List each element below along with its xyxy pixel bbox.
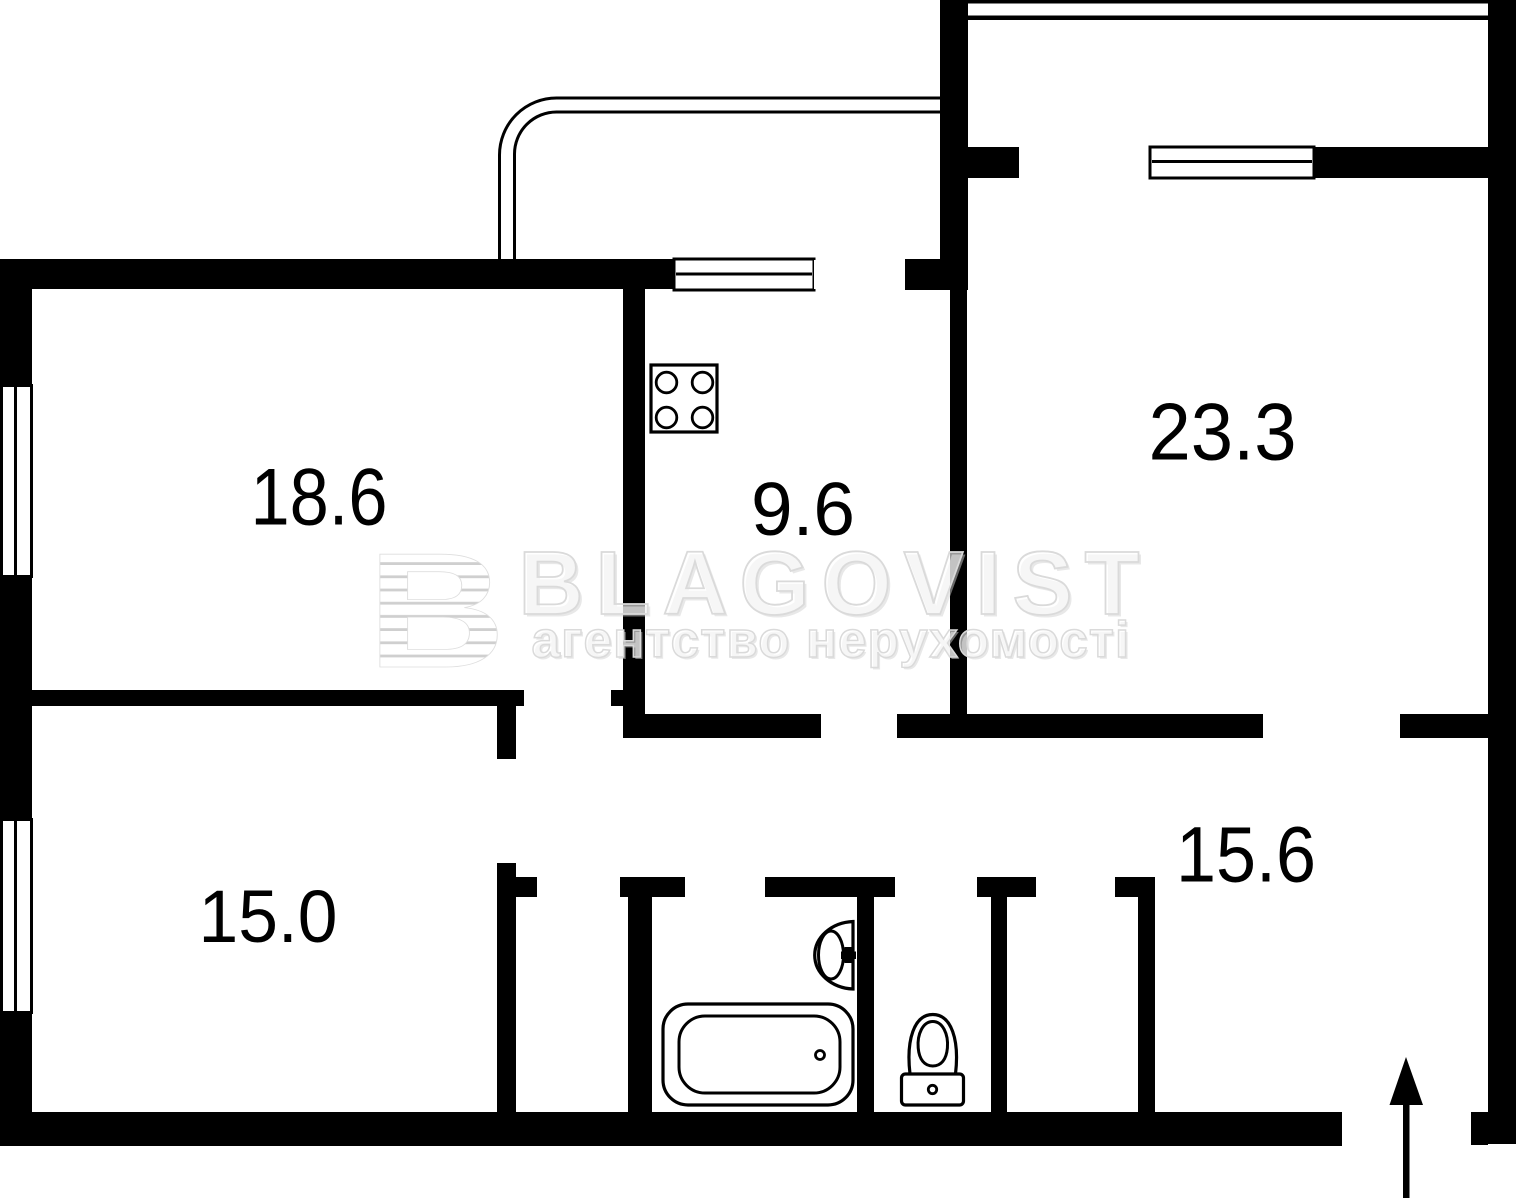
svg-text:агентство нерухомості: агентство нерухомості xyxy=(532,611,1131,668)
svg-text:23.3: 23.3 xyxy=(1149,388,1297,478)
svg-text:15.0: 15.0 xyxy=(199,875,338,958)
svg-text:15.6: 15.6 xyxy=(1176,810,1316,899)
svg-text:B: B xyxy=(367,519,506,702)
